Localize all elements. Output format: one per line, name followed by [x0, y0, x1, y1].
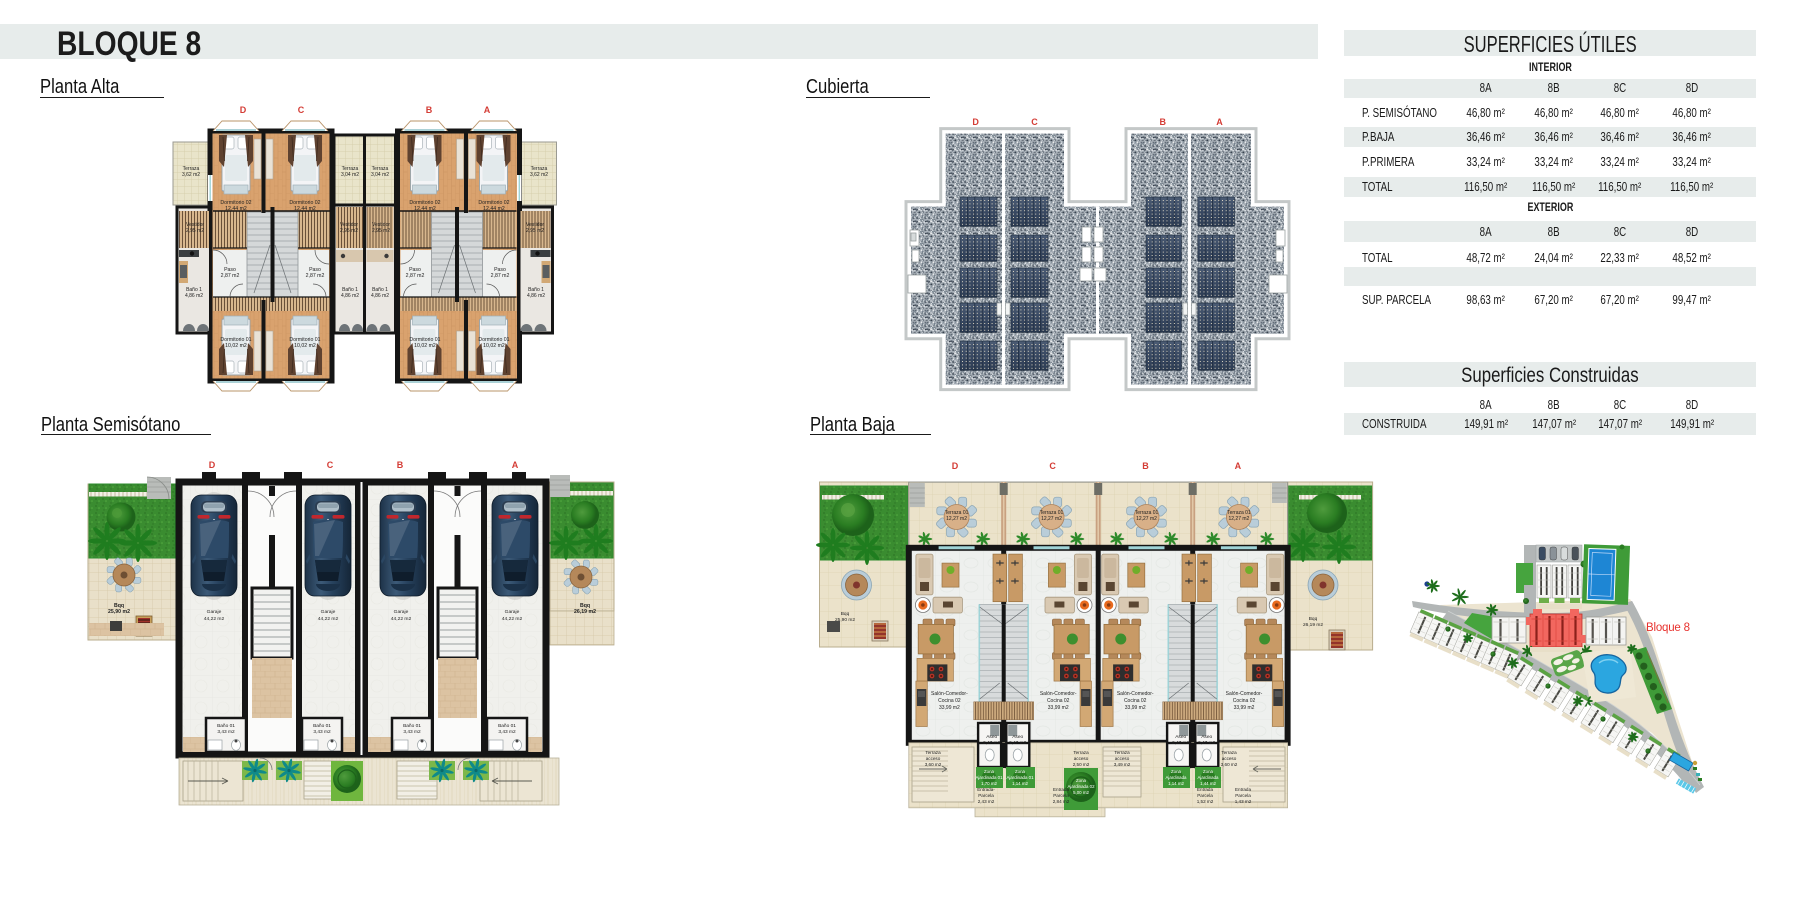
- svg-text:2,50 m2: 2,50 m2: [1073, 762, 1090, 767]
- svg-text:12,44 m2: 12,44 m2: [225, 206, 247, 212]
- svg-text:1,14 m2: 1,14 m2: [1012, 781, 1028, 786]
- svg-text:12,44 m2: 12,44 m2: [483, 206, 505, 212]
- svg-text:3,43 m2: 3,43 m2: [498, 729, 516, 735]
- svg-text:C: C: [327, 460, 334, 470]
- svg-text:Bloque 8: Bloque 8: [1646, 622, 1690, 634]
- svg-text:Garaje: Garaje: [505, 609, 520, 615]
- svg-text:A: A: [512, 460, 519, 470]
- svg-text:D: D: [209, 460, 216, 470]
- svg-text:2,95 m2: 2,95 m2: [340, 228, 358, 234]
- svg-text:Parcela: Parcela: [1197, 793, 1213, 798]
- svg-text:Aseo: Aseo: [1201, 734, 1212, 740]
- svg-text:3,49 m2: 3,49 m2: [1114, 762, 1131, 767]
- svg-text:26,19 m2: 26,19 m2: [574, 609, 596, 615]
- svg-text:3,04 m2: 3,04 m2: [371, 172, 389, 178]
- svg-text:Entrada: Entrada: [1235, 787, 1252, 792]
- svg-text:10,02 m2: 10,02 m2: [414, 343, 436, 349]
- svg-text:2,84 m2: 2,84 m2: [1053, 799, 1070, 804]
- svg-text:33,99 m2: 33,99 m2: [1234, 705, 1255, 711]
- svg-text:D: D: [952, 461, 959, 471]
- svg-text:D: D: [240, 105, 247, 115]
- svg-text:Terraza: Terraza: [925, 750, 941, 755]
- svg-text:12,27 m2: 12,27 m2: [946, 516, 967, 522]
- svg-text:12,44 m2: 12,44 m2: [414, 206, 436, 212]
- svg-text:Baño 01: Baño 01: [313, 723, 331, 729]
- svg-text:2,47 m2: 2,47 m2: [1198, 740, 1216, 746]
- svg-text:12,27 m2: 12,27 m2: [1228, 516, 1249, 522]
- svg-text:2,87 m2: 2,87 m2: [306, 273, 325, 279]
- svg-text:Baño 01: Baño 01: [403, 723, 421, 729]
- svg-text:acceso: acceso: [1115, 756, 1130, 761]
- svg-text:Zona: Zona: [1076, 778, 1087, 783]
- svg-text:D: D: [972, 117, 979, 127]
- svg-text:2,95 m2: 2,95 m2: [186, 228, 204, 234]
- svg-text:3,43 m2: 3,43 m2: [217, 729, 235, 735]
- svg-text:10,02 m2: 10,02 m2: [294, 343, 316, 349]
- svg-text:33,99 m2: 33,99 m2: [939, 705, 960, 711]
- svg-text:Zona: Zona: [984, 769, 995, 774]
- svg-text:1,52 m2: 1,52 m2: [1197, 799, 1214, 804]
- svg-text:4,86 m2: 4,86 m2: [185, 293, 203, 299]
- svg-text:25,90 m2: 25,90 m2: [835, 617, 855, 623]
- svg-text:Aseo: Aseo: [986, 734, 997, 740]
- svg-text:B: B: [426, 105, 433, 115]
- svg-text:4,86 m2: 4,86 m2: [341, 293, 359, 299]
- svg-text:3,60 m2: 3,60 m2: [1221, 762, 1238, 767]
- svg-text:Ajardinada 01: Ajardinada 01: [975, 775, 1003, 780]
- svg-text:Salón-Comedor-: Salón-Comedor-: [1040, 691, 1077, 697]
- svg-text:Baño 01: Baño 01: [498, 723, 516, 729]
- svg-text:2,47 m2: 2,47 m2: [1172, 740, 1190, 746]
- svg-text:Entrada: Entrada: [1197, 787, 1214, 792]
- svg-text:44,22 m2: 44,22 m2: [204, 616, 225, 622]
- svg-text:Salón-Comedor-: Salón-Comedor-: [1226, 691, 1263, 697]
- svg-text:Aseo: Aseo: [1175, 734, 1186, 740]
- svg-text:44,22 m2: 44,22 m2: [502, 616, 523, 622]
- svg-text:44,22 m2: 44,22 m2: [318, 616, 339, 622]
- svg-text:Bqq: Bqq: [841, 611, 850, 617]
- svg-text:A: A: [1216, 117, 1223, 127]
- svg-text:3,43 m2: 3,43 m2: [313, 729, 331, 735]
- svg-text:10,02 m2: 10,02 m2: [483, 343, 505, 349]
- svg-text:2,87 m2: 2,87 m2: [491, 273, 510, 279]
- svg-text:Ajardinada 02: Ajardinada 02: [1067, 784, 1095, 789]
- svg-text:3,62 m2: 3,62 m2: [530, 172, 548, 178]
- svg-text:Aseo: Aseo: [1012, 734, 1023, 740]
- svg-text:12,27 m2: 12,27 m2: [1136, 516, 1157, 522]
- svg-text:Entrada-: Entrada-: [977, 787, 995, 792]
- svg-text:Cocina 02: Cocina 02: [1047, 698, 1070, 704]
- svg-text:2,87 m2: 2,87 m2: [406, 273, 425, 279]
- svg-text:B: B: [1142, 461, 1149, 471]
- svg-text:2,47 m2: 2,47 m2: [983, 740, 1001, 746]
- svg-text:3,43 m2: 3,43 m2: [403, 729, 421, 735]
- svg-text:Parcela: Parcela: [978, 793, 994, 798]
- svg-text:C: C: [298, 105, 305, 115]
- svg-text:B: B: [1160, 117, 1167, 127]
- svg-text:1,14 m2: 1,14 m2: [1168, 781, 1184, 786]
- svg-text:C: C: [1031, 117, 1038, 127]
- svg-text:2,95 m2: 2,95 m2: [372, 228, 390, 234]
- svg-text:A: A: [484, 105, 491, 115]
- svg-text:Entrada: Entrada: [1053, 787, 1070, 792]
- svg-text:Parcela: Parcela: [1235, 793, 1251, 798]
- svg-text:Parcela: Parcela: [1053, 793, 1069, 798]
- svg-text:Ajardinada 01: Ajardinada 01: [1006, 775, 1034, 780]
- svg-text:Zona: Zona: [1015, 769, 1026, 774]
- svg-text:3,60 m2: 3,60 m2: [925, 762, 942, 767]
- svg-text:Salón-Comedor-: Salón-Comedor-: [931, 691, 968, 697]
- svg-text:2,47 m2: 2,47 m2: [1009, 740, 1027, 746]
- svg-text:Garaje: Garaje: [394, 609, 409, 615]
- svg-text:5,00 m2: 5,00 m2: [1073, 790, 1089, 795]
- svg-text:12,44 m2: 12,44 m2: [294, 206, 316, 212]
- svg-text:Zona: Zona: [1203, 769, 1214, 774]
- svg-text:acceso: acceso: [926, 756, 941, 761]
- svg-text:4,86 m2: 4,86 m2: [527, 293, 545, 299]
- svg-text:Ajardinada: Ajardinada: [1166, 775, 1188, 780]
- svg-text:44,22 m2: 44,22 m2: [391, 616, 412, 622]
- svg-text:12,27 m2: 12,27 m2: [1041, 516, 1062, 522]
- svg-text:2,95 m2: 2,95 m2: [526, 228, 544, 234]
- svg-text:Baño 01: Baño 01: [217, 723, 235, 729]
- svg-text:acceso: acceso: [1222, 756, 1237, 761]
- svg-text:Bqq: Bqq: [1309, 616, 1318, 622]
- svg-text:3,04 m2: 3,04 m2: [341, 172, 359, 178]
- svg-text:Zona: Zona: [1171, 769, 1182, 774]
- svg-text:1,44 m2: 1,44 m2: [1200, 781, 1216, 786]
- svg-text:Garaje: Garaje: [321, 609, 336, 615]
- svg-text:33,99 m2: 33,99 m2: [1048, 705, 1069, 711]
- svg-text:Terraza: Terraza: [1114, 750, 1130, 755]
- svg-text:26,19 m2: 26,19 m2: [1303, 622, 1323, 628]
- svg-text:acceso: acceso: [1074, 756, 1089, 761]
- svg-text:1,70 m2: 1,70 m2: [981, 781, 997, 786]
- svg-text:3,62 m2: 3,62 m2: [182, 172, 200, 178]
- svg-text:2,87 m2: 2,87 m2: [221, 273, 240, 279]
- svg-text:Garaje: Garaje: [207, 609, 222, 615]
- svg-text:2,43 m2: 2,43 m2: [978, 799, 995, 804]
- svg-text:Cocina 02: Cocina 02: [938, 698, 961, 704]
- svg-text:Terraza: Terraza: [1221, 750, 1237, 755]
- svg-text:Terraza: Terraza: [1073, 750, 1089, 755]
- svg-text:1,43 m2: 1,43 m2: [1235, 799, 1252, 804]
- svg-text:Cocina 02: Cocina 02: [1233, 698, 1256, 704]
- svg-text:Ajardinada: Ajardinada: [1198, 775, 1220, 780]
- svg-text:B: B: [397, 460, 404, 470]
- svg-text:4,86 m2: 4,86 m2: [371, 293, 389, 299]
- svg-text:A: A: [1235, 461, 1242, 471]
- svg-text:Cocina 02: Cocina 02: [1124, 698, 1147, 704]
- svg-text:Salón-Comedor-: Salón-Comedor-: [1117, 691, 1154, 697]
- svg-text:25,90 m2: 25,90 m2: [108, 609, 130, 615]
- svg-text:C: C: [1049, 461, 1056, 471]
- svg-text:33,99 m2: 33,99 m2: [1125, 705, 1146, 711]
- svg-text:10,02 m2: 10,02 m2: [225, 343, 247, 349]
